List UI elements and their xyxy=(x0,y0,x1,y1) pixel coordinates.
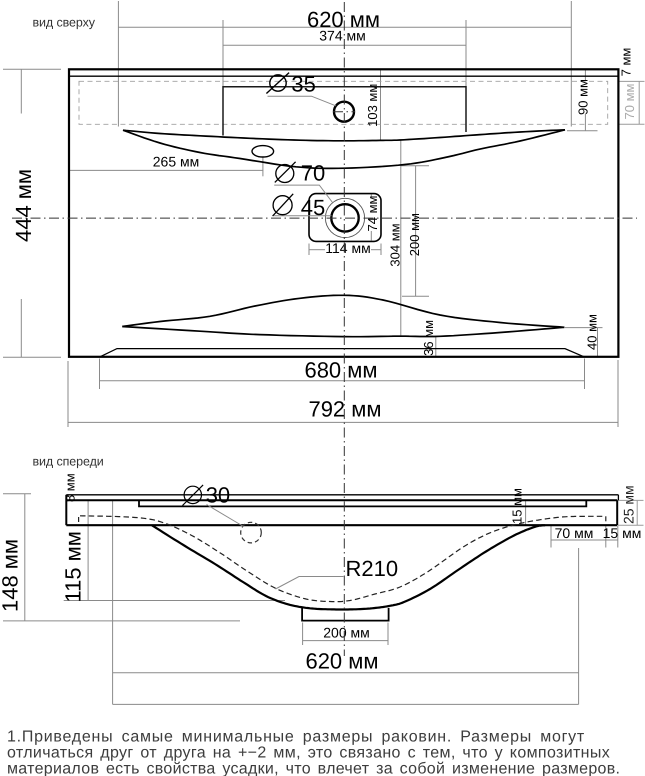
svg-text:25 мм: 25 мм xyxy=(621,485,637,524)
svg-text:680 мм: 680 мм xyxy=(304,358,377,383)
svg-text:вид спереди: вид спереди xyxy=(33,454,104,468)
svg-text:отличаться друг от друга на +−: отличаться друг от друга на +−2 мм, это … xyxy=(7,745,610,762)
svg-text:304 мм: 304 мм xyxy=(388,223,403,266)
svg-text:444 мм: 444 мм xyxy=(11,169,36,242)
svg-text:148 мм: 148 мм xyxy=(0,539,23,612)
svg-text:35: 35 xyxy=(291,72,315,97)
svg-text:вид сверху: вид сверху xyxy=(33,16,96,30)
svg-text:70: 70 xyxy=(301,160,325,185)
svg-text:620 мм: 620 мм xyxy=(305,648,378,673)
svg-text:материалов есть свойства усадк: материалов есть свойства усадки, что вле… xyxy=(7,761,620,776)
svg-text:90 мм: 90 мм xyxy=(575,79,590,115)
svg-text:40 мм: 40 мм xyxy=(585,314,600,350)
svg-text:200 мм: 200 мм xyxy=(323,624,370,640)
svg-text:36 мм: 36 мм xyxy=(421,320,436,356)
svg-text:792 мм: 792 мм xyxy=(308,397,381,422)
svg-text:45: 45 xyxy=(301,195,325,220)
svg-text:7 мм: 7 мм xyxy=(619,48,634,77)
svg-text:1.Приведены самые минимальные: 1.Приведены самые минимальные размеры ра… xyxy=(7,729,585,746)
svg-text:70 мм: 70 мм xyxy=(555,525,594,541)
svg-text:103 мм: 103 мм xyxy=(365,84,380,127)
svg-text:114 мм: 114 мм xyxy=(325,240,370,256)
svg-text:15 мм: 15 мм xyxy=(603,525,642,541)
svg-text:200 мм: 200 мм xyxy=(407,213,422,256)
svg-text:R210: R210 xyxy=(346,556,399,581)
svg-text:74 мм: 74 мм xyxy=(365,195,380,231)
svg-text:15 мм: 15 мм xyxy=(510,488,525,524)
svg-text:374 мм: 374 мм xyxy=(319,28,366,44)
svg-text:70 мм: 70 мм xyxy=(622,83,637,119)
svg-text:115 мм: 115 мм xyxy=(61,531,86,602)
svg-text:30: 30 xyxy=(206,482,230,507)
svg-text:8 мм: 8 мм xyxy=(63,473,78,502)
svg-text:265 мм: 265 мм xyxy=(153,154,200,170)
